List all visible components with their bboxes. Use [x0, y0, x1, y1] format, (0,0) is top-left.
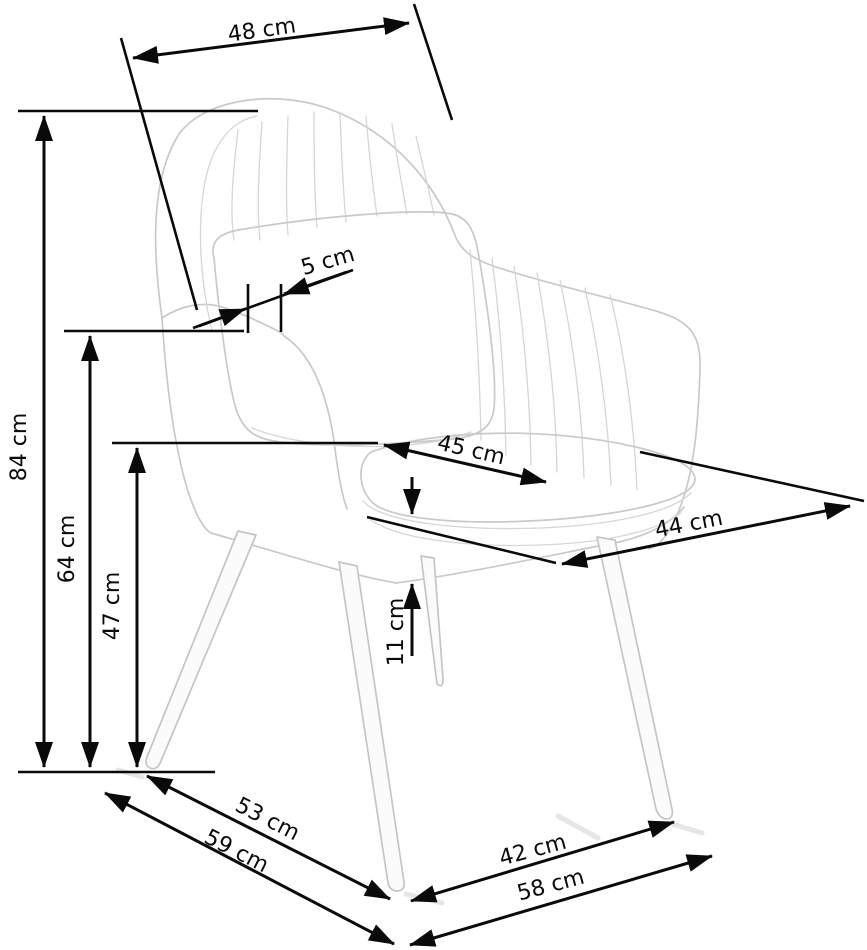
backrest-channel-stitching	[232, 112, 434, 240]
leg-back-left	[146, 531, 256, 769]
backrest-outer-shell	[156, 99, 700, 549]
extension-line-48cm-right	[414, 4, 452, 120]
armchair-dimension-diagram: 48 cm 84 cm 64 cm 47 cm 5 cm 45 cm 44 cm…	[0, 0, 867, 950]
dimension-line-53cm	[147, 776, 390, 899]
dim-label-48cm: 48 cm	[226, 13, 297, 47]
armchair-illustration	[118, 99, 702, 903]
extension-line-48cm-left	[121, 38, 197, 310]
extension-line-44cm-lower	[367, 517, 556, 563]
left-armrest-inner-edge	[284, 336, 347, 509]
dim-label-11cm: 11 cm	[384, 598, 409, 667]
dim-label-84cm: 84 cm	[7, 413, 32, 482]
arrow-5cm-left	[199, 309, 245, 326]
left-side-edge	[162, 318, 211, 533]
leg-front-right	[597, 537, 672, 819]
pillow	[213, 212, 495, 445]
dim-label-47cm: 47 cm	[100, 572, 125, 641]
dimension-lines	[18, 4, 864, 945]
dim-label-5cm: 5 cm	[298, 242, 357, 281]
dim-label-64cm: 64 cm	[55, 515, 80, 584]
dimension-drawing-page: 48 cm 84 cm 64 cm 47 cm 5 cm 45 cm 44 cm…	[0, 0, 867, 950]
extension-line-44cm-upper	[640, 452, 864, 501]
dim-label-58cm: 58 cm	[515, 865, 588, 907]
